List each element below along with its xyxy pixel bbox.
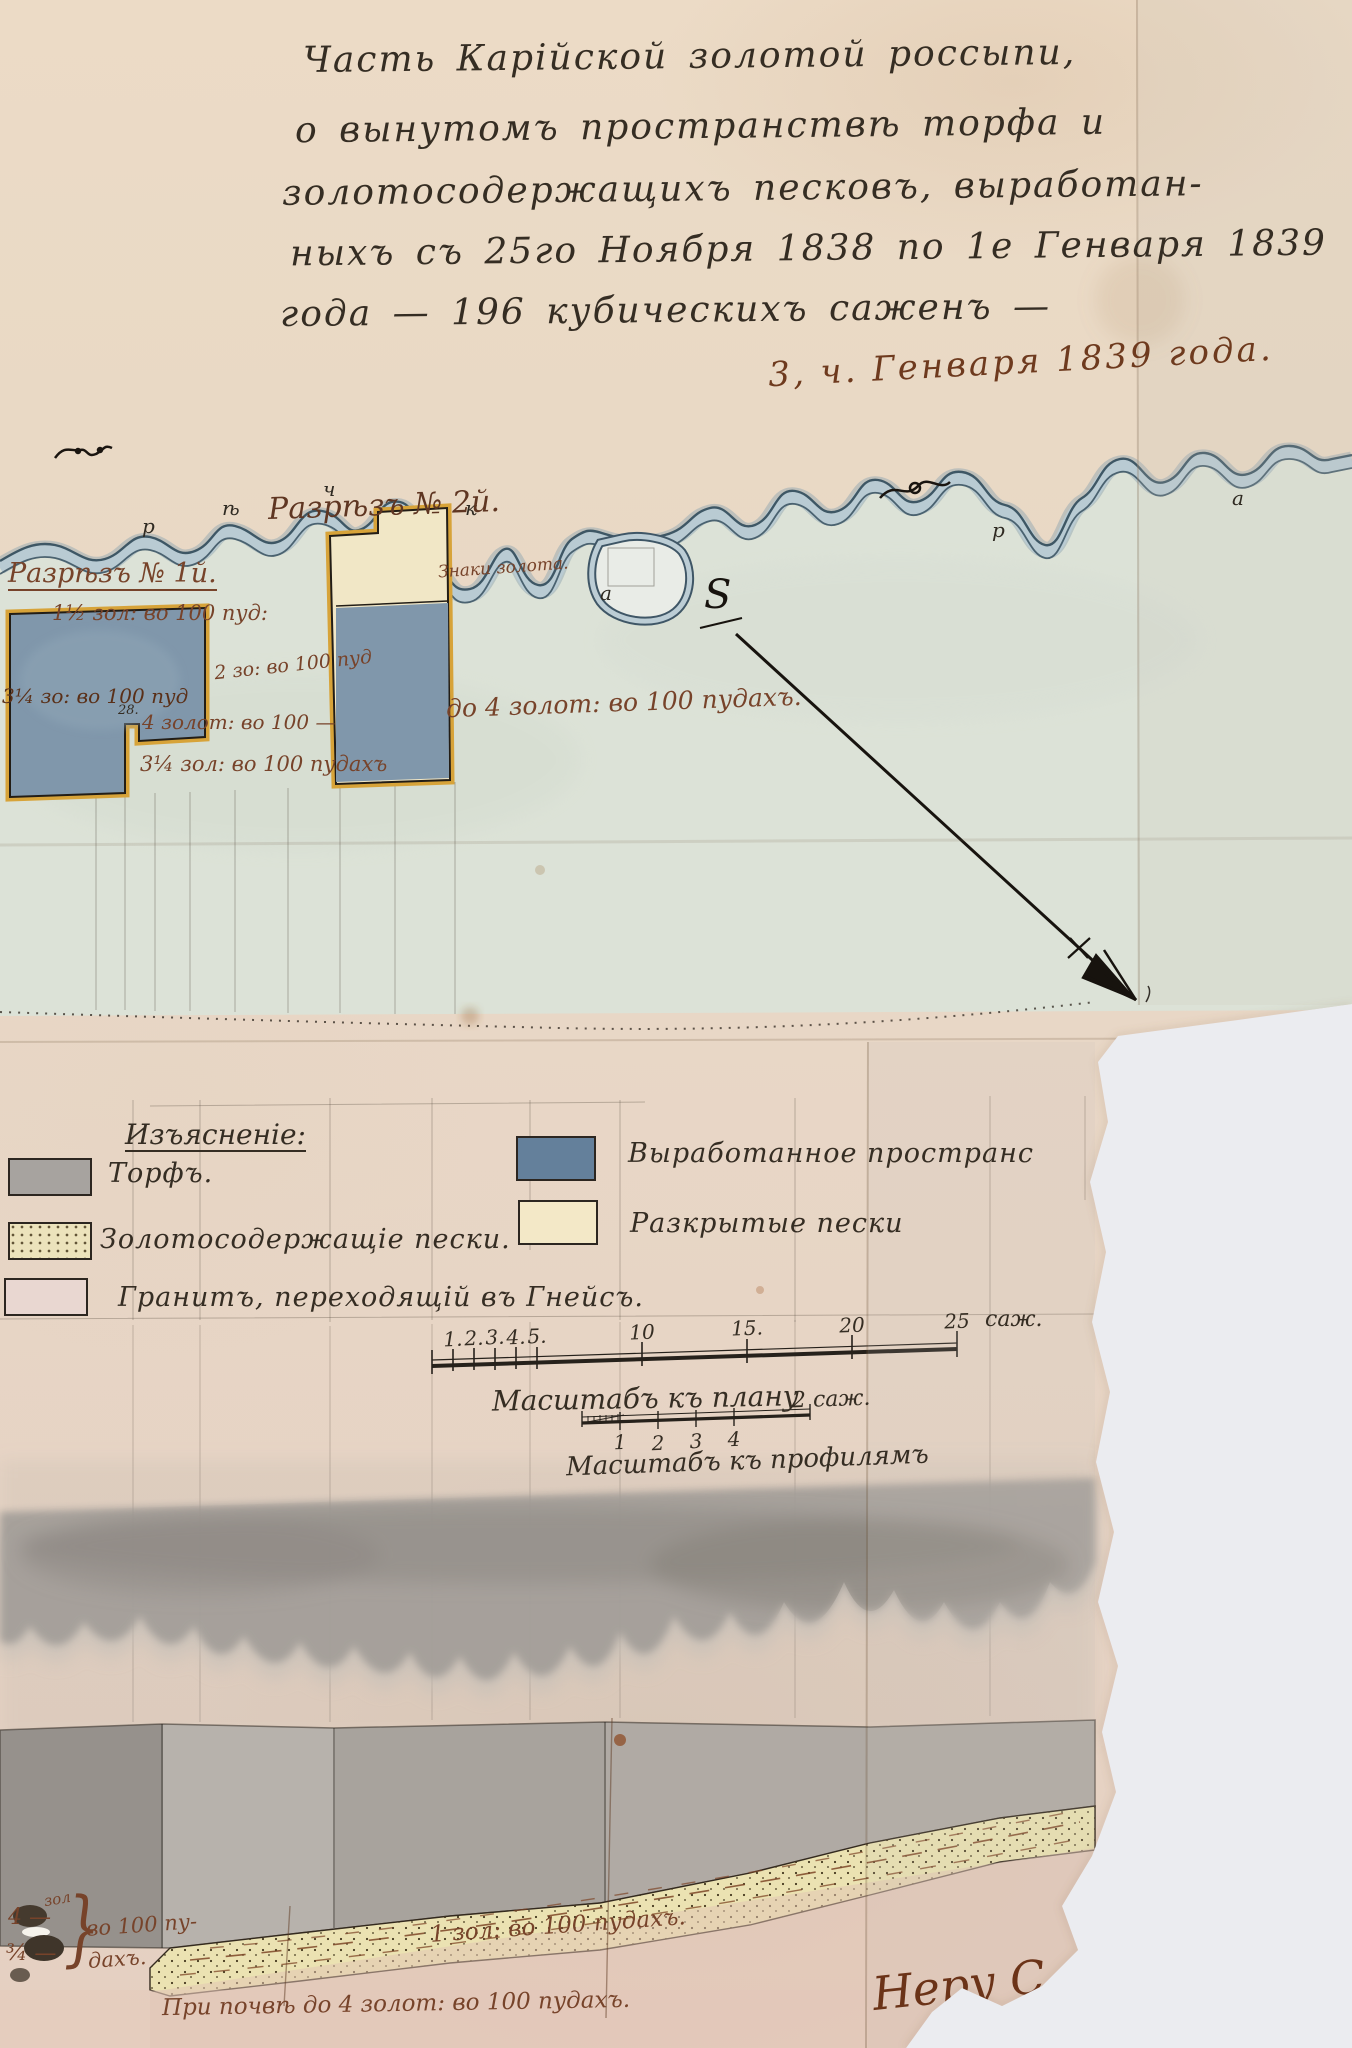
plan-scale-tick: 4. xyxy=(506,1327,526,1349)
river-letter: а xyxy=(600,583,612,604)
legend-header: Изъясненіе: xyxy=(125,1120,306,1152)
section-1-grade: 1½ зол: во 100 пуд: xyxy=(52,602,268,624)
plan-scale-tick: 15. xyxy=(731,1317,764,1339)
section-1-label: Разрѣзъ № 1й. xyxy=(8,560,217,591)
grade-lower: 3¼ зол: во 100 пудахъ xyxy=(140,753,387,775)
plan-scale-caption: Масштабъ къ плану xyxy=(492,1381,799,1416)
bearing-origin-mark: S xyxy=(704,574,731,616)
legend-label-gold-sands: Золотосодержащіе пески. xyxy=(100,1226,511,1254)
flying-marks xyxy=(55,447,950,498)
profile-grade-top: 4 — xyxy=(8,1906,51,1929)
profile-grade-bottom: ¾ — xyxy=(6,1942,56,1965)
scanned-map-backdrop: Часть Карійской золотой россыпи, о вынут… xyxy=(0,0,1352,2048)
legend-label-granite: Гранитъ, переходящій въ Гнейсъ. xyxy=(118,1284,644,1312)
granite-swatch xyxy=(4,1278,88,1316)
profile-per100b: дахъ. xyxy=(87,1946,147,1972)
plan-scale-tick: 5. xyxy=(527,1326,547,1348)
plan-scale-tick: 1. xyxy=(443,1329,463,1351)
torf-swatch xyxy=(8,1158,92,1196)
plan-scale-tick: 20 xyxy=(839,1315,865,1337)
worked-space-swatch xyxy=(516,1136,596,1181)
notch-measure: 28. xyxy=(118,704,139,718)
title-line-5: года — 196 кубическихъ саженъ — xyxy=(280,288,1051,334)
grade-on-block-1: 3¼ зо: во 100 пуд xyxy=(2,686,188,707)
legend-label-torf: Торфъ. xyxy=(108,1160,213,1188)
river-letter: р xyxy=(142,516,155,537)
plan-scale-tick: 25 xyxy=(944,1311,970,1333)
legend-label-worked-space: Выработанное пространс xyxy=(628,1140,1034,1168)
plan-scale-tick: 2. xyxy=(464,1328,484,1350)
excavation-block-2 xyxy=(330,508,450,784)
plan-scale-tick: 10 xyxy=(629,1322,655,1344)
title-line-2: о вынутомъ пространствѣ торфа и xyxy=(295,104,1106,150)
river-letter: а xyxy=(1232,488,1244,509)
plan-scale-unit: саж. xyxy=(985,1308,1042,1331)
section-2-label: Разрѣзъ № 2й. xyxy=(268,486,501,526)
river-letter: ѣ xyxy=(222,498,240,519)
opened-sands-swatch xyxy=(518,1200,598,1245)
title-line-1: Часть Карійской золотой россыпи, xyxy=(303,34,1077,80)
river-letter: р xyxy=(992,520,1005,541)
profile-scale-end-label: 2 саж. xyxy=(792,1387,871,1413)
river-pond xyxy=(592,537,690,622)
legend-label-opened-sands: Разкрытые пески xyxy=(630,1210,904,1238)
map-sheet: Часть Карійской золотой россыпи, о вынут… xyxy=(0,0,1352,2048)
title-line-3: золотосодержащихъ песковъ, выработан- xyxy=(282,165,1204,212)
gold-sands-swatch xyxy=(8,1222,92,1260)
plan-scale-tick: 3. xyxy=(485,1327,505,1349)
grade-mid: 4 золот: во 100 — xyxy=(142,712,335,733)
